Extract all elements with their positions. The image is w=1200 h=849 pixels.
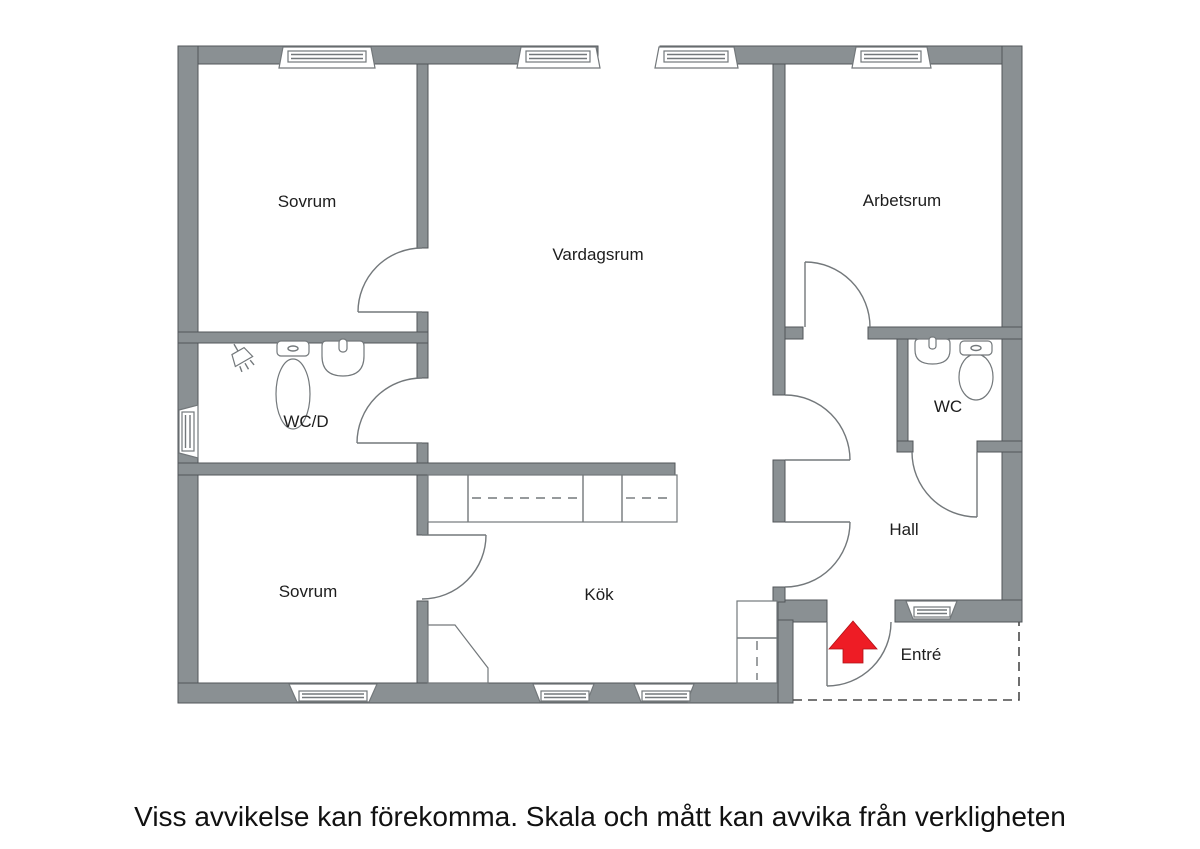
toilet-icon-wc (959, 341, 993, 400)
sink-icon-wc (915, 337, 950, 364)
door-arc-sovrum-top (358, 248, 422, 312)
kitchen-counter (428, 475, 677, 522)
door-arc-wc (912, 452, 977, 517)
sink-icon-wcd (322, 339, 364, 376)
room-label-wcd: WC/D (283, 412, 328, 432)
window-icon-hall (906, 601, 957, 619)
door-arc-hall-lower (785, 522, 850, 587)
room-label-vardagsrum: Vardagsrum (552, 245, 643, 265)
room-label-entre: Entré (901, 645, 942, 665)
room-label-hall: Hall (889, 520, 918, 540)
entrance-arrow-icon (829, 621, 877, 663)
kitchen-cabinet (737, 601, 777, 683)
window-icon-wcd-left-wall (179, 405, 198, 458)
window-icon-sovrum-bottom (289, 684, 377, 702)
window-icon-kok-right (634, 684, 694, 702)
room-label-sovrum-top: Sovrum (278, 192, 337, 212)
disclaimer-text: Viss avvikelse kan förekomma. Skala och … (134, 801, 1066, 833)
door-arc-wcd (357, 378, 422, 443)
door-arc-sovrum-bottom-to-kok (422, 535, 486, 599)
floorplan-canvas: Sovrum Vardagsrum Arbetsrum WC/D Sovrum … (0, 0, 1200, 849)
room-label-kok: Kök (584, 585, 613, 605)
window-icon-arbetsrum (852, 47, 931, 68)
door-arc-arbetsrum (805, 262, 870, 327)
window-icon-sovrum-top (279, 47, 375, 68)
room-label-sovrum-bottom: Sovrum (279, 582, 338, 602)
room-label-wc: WC (934, 397, 962, 417)
window-icon-vardagsrum-right (655, 47, 738, 68)
corner-closet-icon (428, 625, 488, 683)
window-icon-vardagsrum-left (517, 47, 600, 68)
shower-icon (225, 339, 257, 374)
window-icon-kok-left (533, 684, 594, 702)
door-arc-hall-upper (785, 395, 850, 460)
room-label-arbetsrum: Arbetsrum (863, 191, 941, 211)
floorplan-drawing (0, 0, 1200, 770)
